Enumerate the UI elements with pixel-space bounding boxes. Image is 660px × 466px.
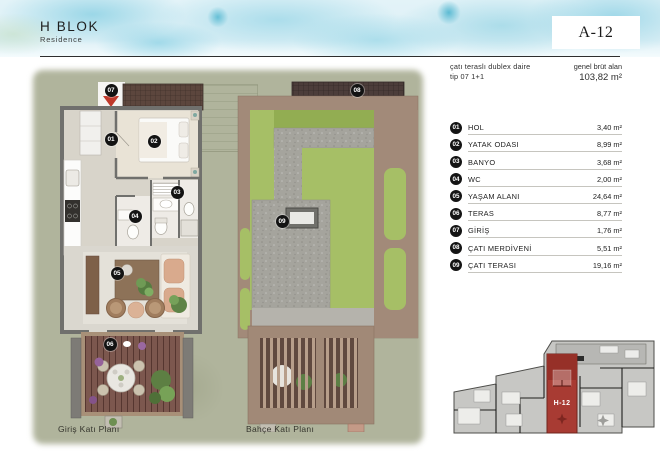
lounger: [164, 259, 184, 283]
marker-08: 08: [351, 84, 364, 97]
legend-row: 09ÇATI TERASI19,16 m²: [450, 257, 622, 274]
room-area: 3,40 m²: [597, 123, 622, 132]
room-name: ÇATI TERASI: [468, 261, 516, 270]
room-name: YATAK ODASI: [468, 140, 519, 149]
unit-type-line1: çatı teraslı dublex daire: [450, 62, 547, 72]
room-area: 24,64 m²: [593, 192, 622, 201]
flowers: [138, 342, 146, 350]
marker-03: 03: [171, 186, 184, 199]
legend-row: 02YATAK ODASI8,99 m²: [450, 136, 622, 153]
gross-area-label: genel brüt alan: [547, 62, 622, 72]
marker-09: 09: [276, 215, 289, 228]
unit-code-box: A-12: [552, 16, 640, 49]
planter-box: [348, 424, 364, 432]
flowers: [95, 358, 104, 367]
room-number-badge: 01: [450, 122, 462, 134]
room-name: GİRİŞ: [468, 226, 490, 235]
shower: [181, 220, 198, 236]
planter-strip: [240, 228, 250, 280]
pillow: [179, 122, 188, 137]
marker-04: 04: [129, 210, 142, 223]
hedge: [274, 110, 374, 130]
pouf: [128, 302, 144, 318]
legend-row: 07GİRİŞ1,76 m²: [450, 222, 622, 239]
room-area: 2,00 m²: [597, 175, 622, 184]
marker-01: 01: [105, 133, 118, 146]
ground-plan-label: Giriş Katı Planı: [58, 424, 120, 434]
basin: [160, 200, 172, 208]
room-name: YAŞAM ALANI: [468, 192, 520, 201]
room-name: HOL: [468, 123, 484, 132]
header-divider: [40, 56, 620, 57]
chair: [134, 361, 145, 372]
toilet: [184, 203, 194, 216]
highlighted-unit-label: H-12: [547, 400, 577, 407]
flowers: [89, 396, 97, 404]
room-name: ÇATI MERDİVENİ: [468, 244, 532, 253]
pergola-slats: [260, 338, 316, 408]
room-number-badge: 05: [450, 190, 462, 202]
block-identity: H BLOK Residence: [40, 19, 99, 44]
chair: [98, 385, 109, 396]
room-number-badge: 04: [450, 173, 462, 185]
room-area: 3,68 m²: [597, 158, 622, 167]
gross-area: genel brüt alan 103,82 m²: [547, 62, 622, 83]
room-area: 8,77 m²: [597, 209, 622, 218]
marker-02: 02: [148, 135, 161, 148]
room-area: 5,51 m²: [597, 244, 622, 253]
room-number-badge: 09: [450, 259, 462, 271]
unit-code: A-12: [579, 24, 614, 42]
planter-strip: [240, 288, 250, 330]
brochure-page: H BLOK Residence A-12 çatı teraslı duble…: [0, 0, 660, 466]
room-legend: 01HOL3,40 m² 02YATAK ODASI8,99 m² 03BANY…: [450, 119, 622, 274]
legend-row: 04WC2,00 m²: [450, 171, 622, 188]
wardrobe: [80, 111, 101, 155]
console: [86, 256, 99, 314]
stone-path: [274, 128, 374, 148]
legend-row: 08ÇATI MERDİVENİ5,51 m²: [450, 239, 622, 256]
unit-type: çatı teraslı dublex daire tip 07 1+1: [450, 62, 547, 83]
room-area: 19,16 m²: [593, 261, 622, 270]
block-subtitle: Residence: [40, 35, 99, 44]
terrace-wall: [71, 338, 81, 418]
room-name: WC: [468, 175, 481, 184]
unit-type-line2: tip 07 1+1: [450, 72, 547, 82]
room-number-badge: 06: [450, 208, 462, 220]
room-area: 8,99 m²: [597, 140, 622, 149]
room-number-badge: 08: [450, 242, 462, 254]
terrace-wall: [183, 338, 193, 418]
marker-07: 07: [105, 84, 118, 97]
garden-floor-plan: [228, 80, 423, 432]
planter-strip: [384, 248, 406, 310]
garden-plan-label: Bahçe Katı Planı: [246, 424, 314, 434]
stove: [65, 200, 80, 222]
legend-row: 05YAŞAM ALANI24,64 m²: [450, 188, 622, 205]
room-number-badge: 07: [450, 225, 462, 237]
legend-row: 03BANYO3,68 m²: [450, 153, 622, 170]
marker-05: 05: [111, 267, 124, 280]
room-number-badge: 03: [450, 156, 462, 168]
room-name: BANYO: [468, 158, 495, 167]
pergola-slats: [324, 338, 358, 408]
marker-06: 06: [104, 338, 117, 351]
kitchen-sink: [66, 170, 79, 186]
legend-row: 01HOL3,40 m²: [450, 119, 622, 136]
room-number-badge: 02: [450, 139, 462, 151]
chair: [134, 385, 145, 396]
pillow: [179, 143, 188, 158]
ground-floor-plan: [55, 80, 210, 432]
unit-type-info: çatı teraslı dublex daire tip 07 1+1 gen…: [450, 62, 622, 83]
wc-toilet: [128, 225, 139, 239]
block-title: H BLOK: [40, 19, 99, 34]
planter-strip: [384, 168, 406, 240]
legend-row: 06TERAS8,77 m²: [450, 205, 622, 222]
site-key-plan: [450, 328, 658, 440]
gross-area-value: 103,82 m²: [547, 73, 622, 83]
room-area: 1,76 m²: [597, 226, 622, 235]
room-name: TERAS: [468, 209, 494, 218]
